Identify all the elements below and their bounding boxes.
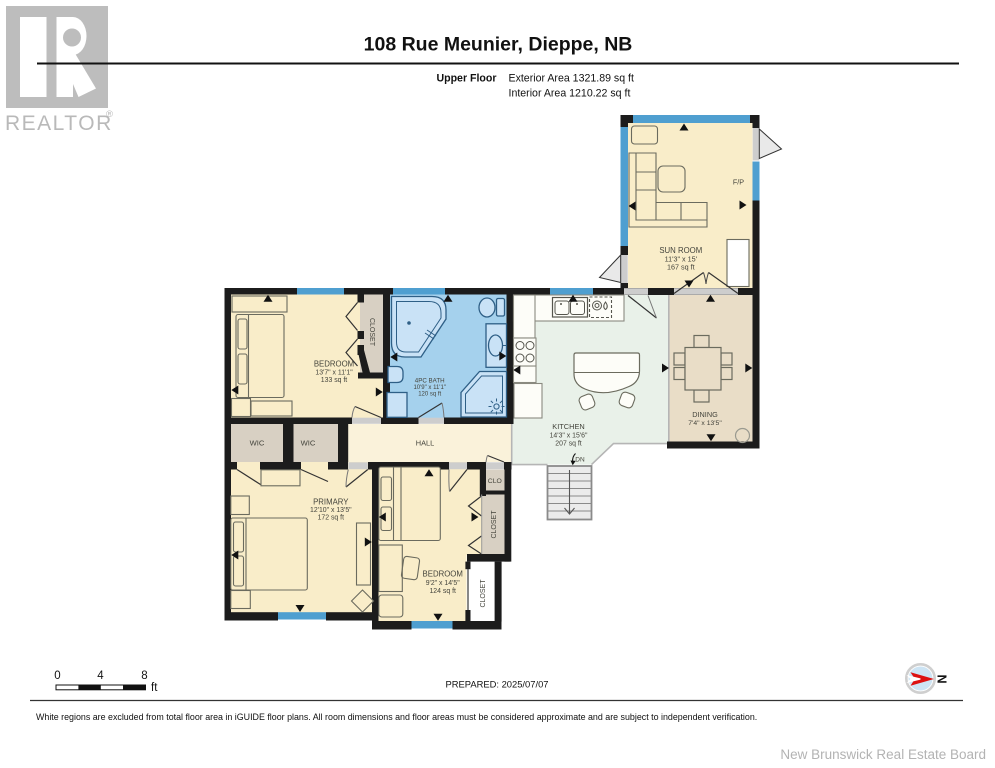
- svg-text:ft: ft: [151, 682, 158, 694]
- svg-text:124 sq ft: 124 sq ft: [429, 588, 456, 595]
- svg-text:0: 0: [54, 670, 60, 682]
- svg-text:CLOSET: CLOSET: [480, 579, 487, 608]
- svg-text:N: N: [935, 674, 949, 683]
- svg-text:F/P: F/P: [733, 178, 744, 187]
- svg-text:133 sq ft: 133 sq ft: [321, 377, 348, 384]
- svg-text:167 sq ft: 167 sq ft: [667, 262, 695, 271]
- svg-text:White regions are excluded fro: White regions are excluded from total fl…: [36, 712, 757, 722]
- svg-text:108 Rue Meunier, Dieppe, NB: 108 Rue Meunier, Dieppe, NB: [364, 34, 633, 56]
- svg-text:8: 8: [141, 670, 147, 682]
- svg-text:7'4" x 13'5": 7'4" x 13'5": [688, 420, 722, 427]
- svg-text:HALL: HALL: [416, 439, 435, 448]
- svg-text:14'3" x 15'6": 14'3" x 15'6": [550, 432, 588, 439]
- svg-text:120 sq ft: 120 sq ft: [418, 391, 441, 397]
- svg-text:WIC: WIC: [301, 439, 316, 448]
- svg-text:CLO: CLO: [488, 478, 502, 485]
- svg-text:172 sq ft: 172 sq ft: [318, 514, 345, 521]
- svg-text:CLOSET: CLOSET: [368, 318, 375, 347]
- svg-text:9'2" x 14'5": 9'2" x 14'5": [426, 580, 461, 587]
- svg-text:12'10" x 13'5": 12'10" x 13'5": [310, 507, 352, 514]
- svg-text:DINING: DINING: [692, 410, 718, 419]
- svg-text:10'9" x 11'1": 10'9" x 11'1": [413, 385, 445, 391]
- svg-text:BEDROOM: BEDROOM: [314, 360, 354, 369]
- svg-text:Upper Floor: Upper Floor: [436, 73, 496, 85]
- svg-text:4: 4: [97, 670, 104, 682]
- svg-text:13'7" x 11'1": 13'7" x 11'1": [315, 369, 353, 376]
- svg-text:REALTOR: REALTOR: [5, 112, 113, 135]
- svg-text:KITCHEN: KITCHEN: [552, 422, 584, 431]
- svg-text:Exterior Area 1321.89 sq ft: Exterior Area 1321.89 sq ft: [509, 73, 634, 85]
- svg-text:New Brunswick Real Estate Boar: New Brunswick Real Estate Board: [780, 747, 986, 762]
- svg-text:PREPARED: 2025/07/07: PREPARED: 2025/07/07: [445, 679, 548, 690]
- svg-text:207 sq ft: 207 sq ft: [555, 440, 582, 447]
- svg-text:Interior Area 1210.22 sq ft: Interior Area 1210.22 sq ft: [509, 88, 631, 100]
- svg-text:BEDROOM: BEDROOM: [423, 570, 463, 579]
- svg-text:CLOSET: CLOSET: [491, 510, 498, 539]
- svg-text:WIC: WIC: [250, 439, 265, 448]
- svg-text:DN: DN: [575, 457, 585, 464]
- svg-text:4PC BATH: 4PC BATH: [415, 377, 445, 384]
- svg-text:®: ®: [106, 109, 113, 120]
- svg-text:PRIMARY: PRIMARY: [313, 497, 349, 506]
